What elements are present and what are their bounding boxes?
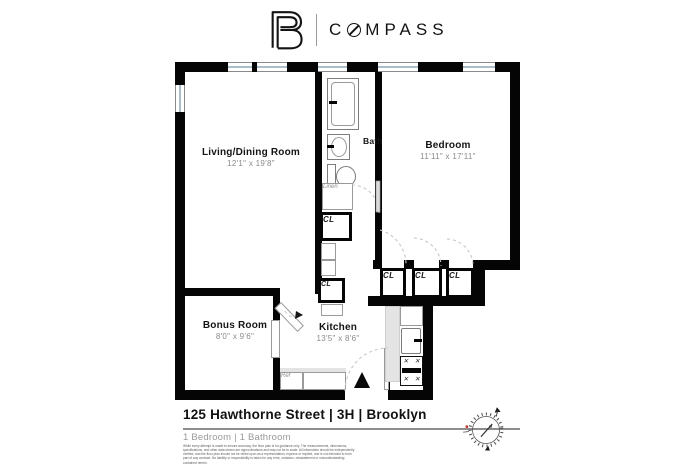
kitchen-counter [400,306,423,326]
room-dims: 13'5" x 8'6" [316,334,359,343]
address-title: 125 Hawthorne Street | 3H | Brooklyn [183,407,427,422]
entry-triangle-icon [354,372,370,388]
room-dims: 11'11" x 17'11" [420,152,476,161]
room-dims: 12'1" x 19'8" [202,159,300,168]
room-label-bath: Bath [363,136,383,146]
wall [175,390,345,400]
wall [375,72,382,262]
room-label-bonus: Bonus Room 8'0" x 9'6" [203,320,267,341]
linen-label: Linen [323,184,338,190]
window [175,85,185,112]
window-mullion [252,62,257,72]
room-name: Kitchen [316,322,359,333]
hall-closet-small: CL [318,278,345,303]
room-label-kitchen: Kitchen 13'5" x 8'6" [316,322,359,343]
ref-label: Ref [281,373,290,379]
refrigerator-icon: Ref [280,372,303,390]
compass-logo: C MPASS [266,8,449,52]
shelf [321,243,336,260]
bathtub-basin [331,82,355,126]
window [318,62,347,72]
window [228,62,287,72]
wall [510,62,520,267]
hall-closet: CL [320,212,352,241]
wall [473,260,485,300]
linen-closet: Linen [322,183,353,210]
wall [423,306,433,400]
shelf [321,260,336,276]
kitchen-counter [303,372,346,390]
faucet-icon [414,339,422,342]
disclaimer-text: While every attempt is made to ensure ac… [183,444,357,465]
room-label-bedroom: Bedroom 11'11" x 17'11" [420,140,476,161]
closet-label: CL [383,271,394,280]
room-name: Living/Dining Room [202,147,300,158]
bedroom-closet-3: CL [446,268,474,298]
wall [287,62,318,72]
room-label-living: Living/Dining Room 12'1" x 19'8" [202,147,300,168]
wall [347,62,378,72]
room-name: Bonus Room [203,320,267,331]
room-name: Bath [363,136,383,146]
wordmark-after-o: MPASS [365,20,448,40]
floor-plan: Linen CL CL CL CL CL ✕✕ ✕✕ Ref Living/Di… [175,62,520,400]
wall [418,62,463,72]
logo-divider [316,14,317,46]
closet-label: CL [323,215,334,224]
closet-label: CL [449,271,460,280]
bedroom-closet-2: CL [412,268,442,298]
closet-label: CL [321,281,331,288]
stove-bar [402,368,421,373]
kitchen-counter [385,306,400,382]
wall [185,288,277,296]
wall [175,62,185,85]
bedroom-closet-1: CL [380,268,406,298]
window [378,62,418,72]
room-name: Bedroom [420,140,476,151]
wordmark-before-o: C [329,20,346,40]
compass-wordmark: C MPASS [329,20,449,40]
compass-monogram-icon [266,10,306,50]
shelf [321,304,343,316]
window [463,62,495,72]
faucet-icon [327,145,334,148]
room-dims: 8'0" x 9'6" [203,332,267,341]
door-leaf [271,320,280,358]
slashed-o-icon [347,23,361,37]
wall [175,112,185,400]
bed-bath-summary: 1 Bedroom | 1 Bathroom [183,432,291,443]
wall [273,356,280,390]
closet-label: CL [415,271,426,280]
compass-rose-icon [460,402,512,456]
faucet-icon [329,101,337,104]
